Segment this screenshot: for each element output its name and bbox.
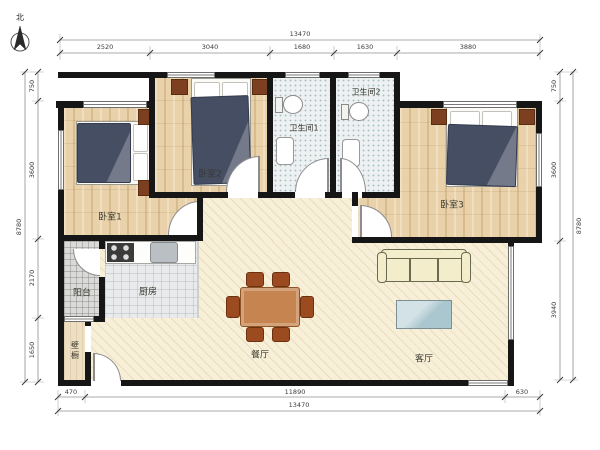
dim-right-seg: 750: [550, 80, 558, 92]
dim-left-seg: 3600: [28, 162, 36, 179]
room-label-bath2: 卫生间2: [351, 87, 380, 98]
dim-left-total: 8780: [15, 219, 23, 236]
dim-top-seg: 3880: [460, 43, 477, 51]
floor-plan: 卧室1 卧室2 卫生间1 卫生间2 卧室3 厨房 阳台 壁橱 餐厅 客厅 134…: [0, 0, 600, 450]
dim-bottom-seg: 630: [516, 388, 528, 396]
dim-top-seg: 1630: [357, 43, 374, 51]
room-label-kitchen: 厨房: [139, 285, 157, 298]
dimension-lines: [0, 0, 600, 450]
dim-top-seg: 1680: [294, 43, 311, 51]
dim-bottom-seg: 11890: [285, 388, 306, 396]
dim-top-seg: 2520: [97, 43, 114, 51]
dim-right-seg: 3600: [550, 162, 558, 179]
dim-left-seg: 2170: [28, 270, 36, 287]
room-label-balcony: 阳台: [73, 286, 91, 299]
dim-top-total: 13470: [290, 30, 311, 38]
room-label-bedroom3: 卧室3: [440, 198, 464, 211]
room-label-living: 客厅: [415, 352, 433, 365]
dim-top-seg: 3040: [202, 43, 219, 51]
room-label-bedroom1: 卧室1: [98, 210, 122, 223]
dim-left-seg: 1650: [28, 342, 36, 359]
room-label-bedroom2: 卧室2: [198, 167, 222, 180]
dim-right-total: 8780: [575, 218, 583, 235]
dim-right-seg: 3940: [550, 302, 558, 319]
room-label-dining: 餐厅: [251, 348, 269, 361]
north-label: 北: [6, 12, 34, 23]
north-indicator: 北: [6, 12, 34, 56]
dim-left-seg: 750: [28, 80, 36, 92]
room-label-closet: 壁橱: [70, 341, 81, 361]
dim-bottom-seg: 470: [65, 388, 77, 396]
compass-icon: [6, 23, 34, 57]
room-label-bath1: 卫生间1: [289, 123, 318, 134]
dim-bottom-total: 13470: [289, 401, 310, 409]
